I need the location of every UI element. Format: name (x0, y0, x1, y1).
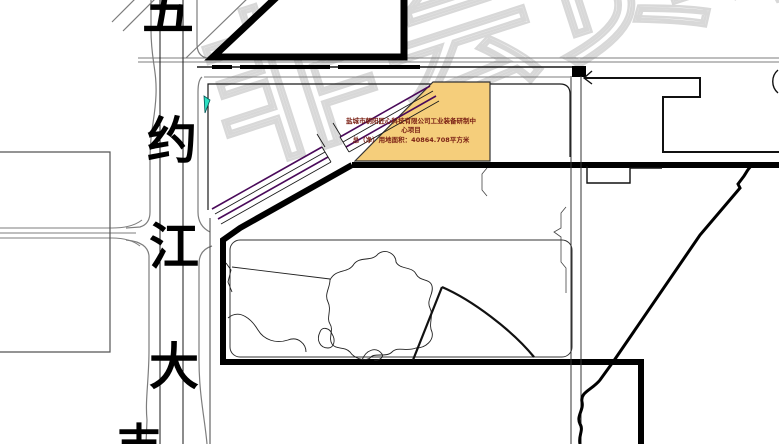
street-char-2: 约 (147, 116, 197, 166)
street-char-1: 五 (142, 0, 194, 38)
project-parcel-label: 盐城市朝阳匠心科技有限公司工业装备研制中 心项目 总（净）用地面积：40864.… (340, 117, 482, 145)
east-parcels (554, 66, 779, 444)
project-area-line: 总（净）用地面积：40864.708平方米 (340, 136, 482, 145)
top-road (138, 58, 779, 77)
map-linework (0, 0, 779, 444)
boundary-corner-block (572, 66, 586, 77)
street-char-partial-bottom: 丰 (116, 423, 162, 444)
project-name-line1: 盐城市朝阳匠心科技有限公司工业装备研制中 (340, 117, 482, 126)
pond-outline (327, 252, 433, 360)
site-boundary (223, 165, 779, 444)
central-block (226, 240, 572, 360)
street-char-4: 大 (149, 342, 199, 392)
west-road (0, 220, 142, 246)
diagonal-boundary (579, 164, 758, 444)
street-char-3: 江 (149, 222, 199, 272)
project-name-line2: 心项目 (340, 126, 482, 135)
teal-marker (204, 96, 210, 113)
west-parcel-outline (0, 152, 110, 352)
planning-map-canvas: 非会员水印 (0, 0, 779, 444)
